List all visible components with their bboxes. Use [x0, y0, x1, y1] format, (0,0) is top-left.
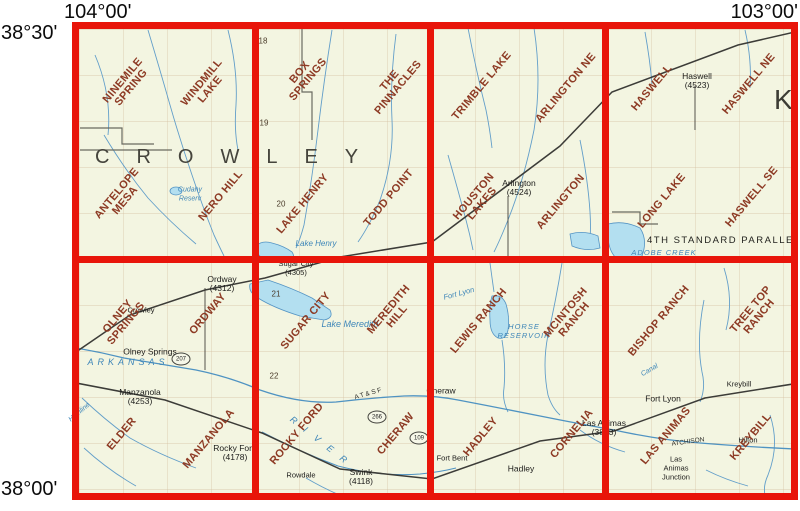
- lake-henry-label: Lake Henry: [296, 240, 337, 249]
- town-hadley: Hadley: [508, 465, 534, 474]
- latitude-label-south: 38°00': [1, 478, 57, 501]
- town-las-animas-junction: Las Animas Junction: [662, 455, 690, 482]
- highway-shield-109: 109: [410, 432, 429, 445]
- section-number-21: 21: [272, 290, 281, 299]
- longitude-label-east: 103°00': [688, 1, 798, 24]
- town-haswell: Haswell (4523): [682, 72, 712, 90]
- grid-horizontal-middle-line: [72, 256, 798, 263]
- grid-border-bottom: [72, 493, 798, 500]
- town-arlington: Arlington (4524): [502, 179, 536, 197]
- county-name-crowley: CROWLEY: [95, 146, 385, 169]
- town-swink: Swink (4118): [349, 468, 373, 486]
- highway-shield-266: 266: [368, 411, 387, 424]
- highway-shield-207: 207: [172, 353, 191, 366]
- section-number-19: 19: [260, 119, 269, 128]
- grid-border-top: [72, 22, 798, 29]
- arkansas-river-label: ARKANSAS: [87, 358, 168, 367]
- topo-quad-index-map: 104°00' 103°00' 38°30' 38°00' CROWLEY K …: [0, 0, 800, 511]
- town-olney-springs: Olney Springs: [123, 348, 176, 357]
- cudahy-reservoir-label: Cudahy Reserv: [178, 187, 202, 204]
- section-number-22: 22: [270, 372, 279, 381]
- town-rocky-ford: Rocky Ford (4178): [213, 444, 256, 462]
- site-fort-bent: Fort Bent: [437, 454, 468, 463]
- longitude-label-west: 104°00': [64, 1, 131, 24]
- county-name-kiowa-partial: K: [774, 84, 793, 116]
- latitude-label-north: 38°30': [1, 22, 57, 45]
- town-fort-lyon: Fort Lyon: [645, 395, 681, 404]
- town-kreybill: Kreybill: [727, 380, 752, 389]
- town-rowdale: Rowdale: [286, 471, 315, 480]
- section-number-20: 20: [277, 200, 286, 209]
- section-number-18: 18: [259, 37, 268, 46]
- town-manzanola: Manzanola (4253): [119, 388, 161, 406]
- standard-parallel-label: 4TH STANDARD PARALLEL: [647, 235, 797, 246]
- town-ordway: Ordway (4312): [207, 275, 236, 293]
